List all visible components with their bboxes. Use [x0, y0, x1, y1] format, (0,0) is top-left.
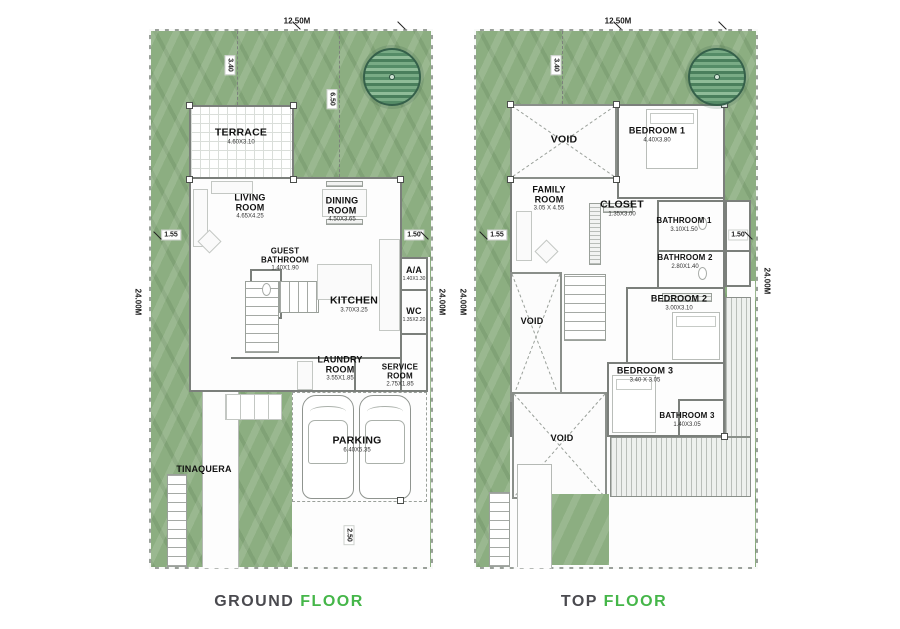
room-label-terrace: TERRACE 4.60X3.10: [196, 128, 286, 147]
setback-line: [562, 31, 563, 104]
room-label-void-bottom: VOID: [537, 434, 587, 444]
pillar: [397, 176, 404, 183]
dim-depth-right: 24.00M: [763, 266, 772, 297]
tree-icon: [363, 48, 421, 106]
dining-chairs-top: [326, 181, 363, 187]
pillar: [186, 176, 193, 183]
dim-tick: [718, 21, 726, 29]
pillar: [507, 176, 514, 183]
void-middle: [510, 272, 562, 402]
pillar: [507, 101, 514, 108]
dim-tick: [397, 21, 405, 29]
room-label-bedroom2: BEDROOM 2 3.00X3.10: [639, 294, 719, 311]
pillar: [186, 102, 193, 109]
dim-side-left: 1.55: [161, 230, 181, 241]
dim-depth-right: 24.00M: [438, 287, 447, 318]
dim-side-left: 1.55: [487, 230, 507, 241]
room-label-void-top: VOID: [534, 134, 594, 145]
rear-deck: [610, 437, 751, 497]
room-label-tinaquera: TINAQUERA: [149, 465, 259, 475]
room-label-service: SERVICE ROOM 2.75X1.85: [373, 364, 427, 389]
dim-depth-left: 24.00M: [459, 287, 468, 318]
room-label-kitchen: KITCHEN 3.70X3.25: [314, 296, 394, 315]
garden-steps: [167, 474, 187, 567]
room-label-laundry: LAUNDRY ROOM 3.55X1.85: [308, 356, 372, 383]
tree-icon: [688, 48, 746, 106]
dim-depth-left: 24.00M: [134, 287, 143, 318]
pillar: [613, 101, 620, 108]
bedroom3-top-wall: [607, 362, 725, 364]
toilet-fixture: [262, 283, 271, 296]
bathroom-annex: [725, 200, 751, 287]
dim-front-setback: 3.40: [225, 55, 236, 75]
rear-lawn-patch: [552, 494, 609, 565]
floor-plan-sheet: TERRACE 4.60X3.10 LIVING ROOM 4.65X4.25 …: [0, 0, 900, 629]
room-label-aa: A/A 1.40X1.30: [399, 266, 429, 282]
room-label-void-middle: VOID: [507, 317, 557, 327]
side-deck: [725, 297, 751, 437]
top-floor-plan: VOID BEDROOM 1 4.40X3.80 FAMILY ROOM 3.0…: [474, 29, 758, 569]
room-label-closet: CLOSET 1.35X3.00: [592, 200, 652, 219]
dim-plot-width: 12.50M: [284, 17, 311, 26]
pillar: [613, 176, 620, 183]
dim-rear: 2.50: [344, 525, 355, 545]
room-label-family: FAMILY ROOM 3.05 X 4.55: [521, 186, 577, 213]
room-label-guest-bathroom: GUEST BATHROOM 1.40X1.90: [250, 248, 320, 273]
staircase-landing: [279, 281, 319, 313]
bedroom2-top-wall: [626, 287, 725, 289]
room-label-bathroom3: BATHROOM 3 1.40X3.05: [649, 412, 725, 428]
staircase: [564, 274, 606, 341]
ground-floor-plan: TERRACE 4.60X3.10 LIVING ROOM 4.65X4.25 …: [149, 29, 433, 569]
pillar: [721, 433, 728, 440]
setback-line: [237, 31, 238, 105]
bathroom-left-wall: [657, 200, 659, 287]
room-label-wc: WC 1.35X2.20: [399, 307, 429, 323]
dim-terrace-depth: 6.50: [327, 89, 338, 109]
dim-front-setback: 3.40: [551, 55, 562, 75]
room-label-living: LIVING ROOM 4.65X4.25: [219, 194, 281, 221]
room-label-bathroom1: BATHROOM 1 3.10X1.50: [646, 217, 722, 233]
family-sofa: [516, 211, 532, 261]
top-floor-caption: TOP FLOOR: [474, 593, 754, 611]
pillar: [397, 497, 404, 504]
room-label-parking: PARKING 6.40X5.35: [317, 436, 397, 455]
ground-floor-caption: GROUND FLOOR: [149, 593, 429, 611]
kitchen-counter: [379, 239, 400, 331]
bathroom-divider-wall: [657, 250, 751, 252]
terrace-depth-line: [339, 31, 340, 177]
pillar: [290, 102, 297, 109]
aa-wc-wall: [400, 289, 428, 291]
room-label-bedroom1: BEDROOM 1 4.40X3.80: [617, 126, 697, 143]
bedroom2-left-wall: [626, 287, 628, 364]
bathroom1-top-wall: [657, 200, 725, 202]
garden-steps: [489, 492, 510, 567]
room-label-bedroom3: BEDROOM 3 3.40 X 3.05: [603, 366, 687, 383]
pillar: [290, 176, 297, 183]
room-label-dining: DINING ROOM 4.50X3.65: [313, 197, 371, 224]
bedroom1-wall: [617, 104, 619, 197]
bathroom3-wall: [678, 399, 725, 401]
wc-service-wall: [400, 333, 428, 335]
side-walkway: [517, 464, 552, 569]
room-label-bathroom2: BATHROOM 2 2.80X1.40: [647, 254, 723, 270]
dim-plot-width: 12.50M: [605, 17, 632, 26]
storage-row: [225, 394, 282, 420]
bed-2: [672, 312, 720, 360]
